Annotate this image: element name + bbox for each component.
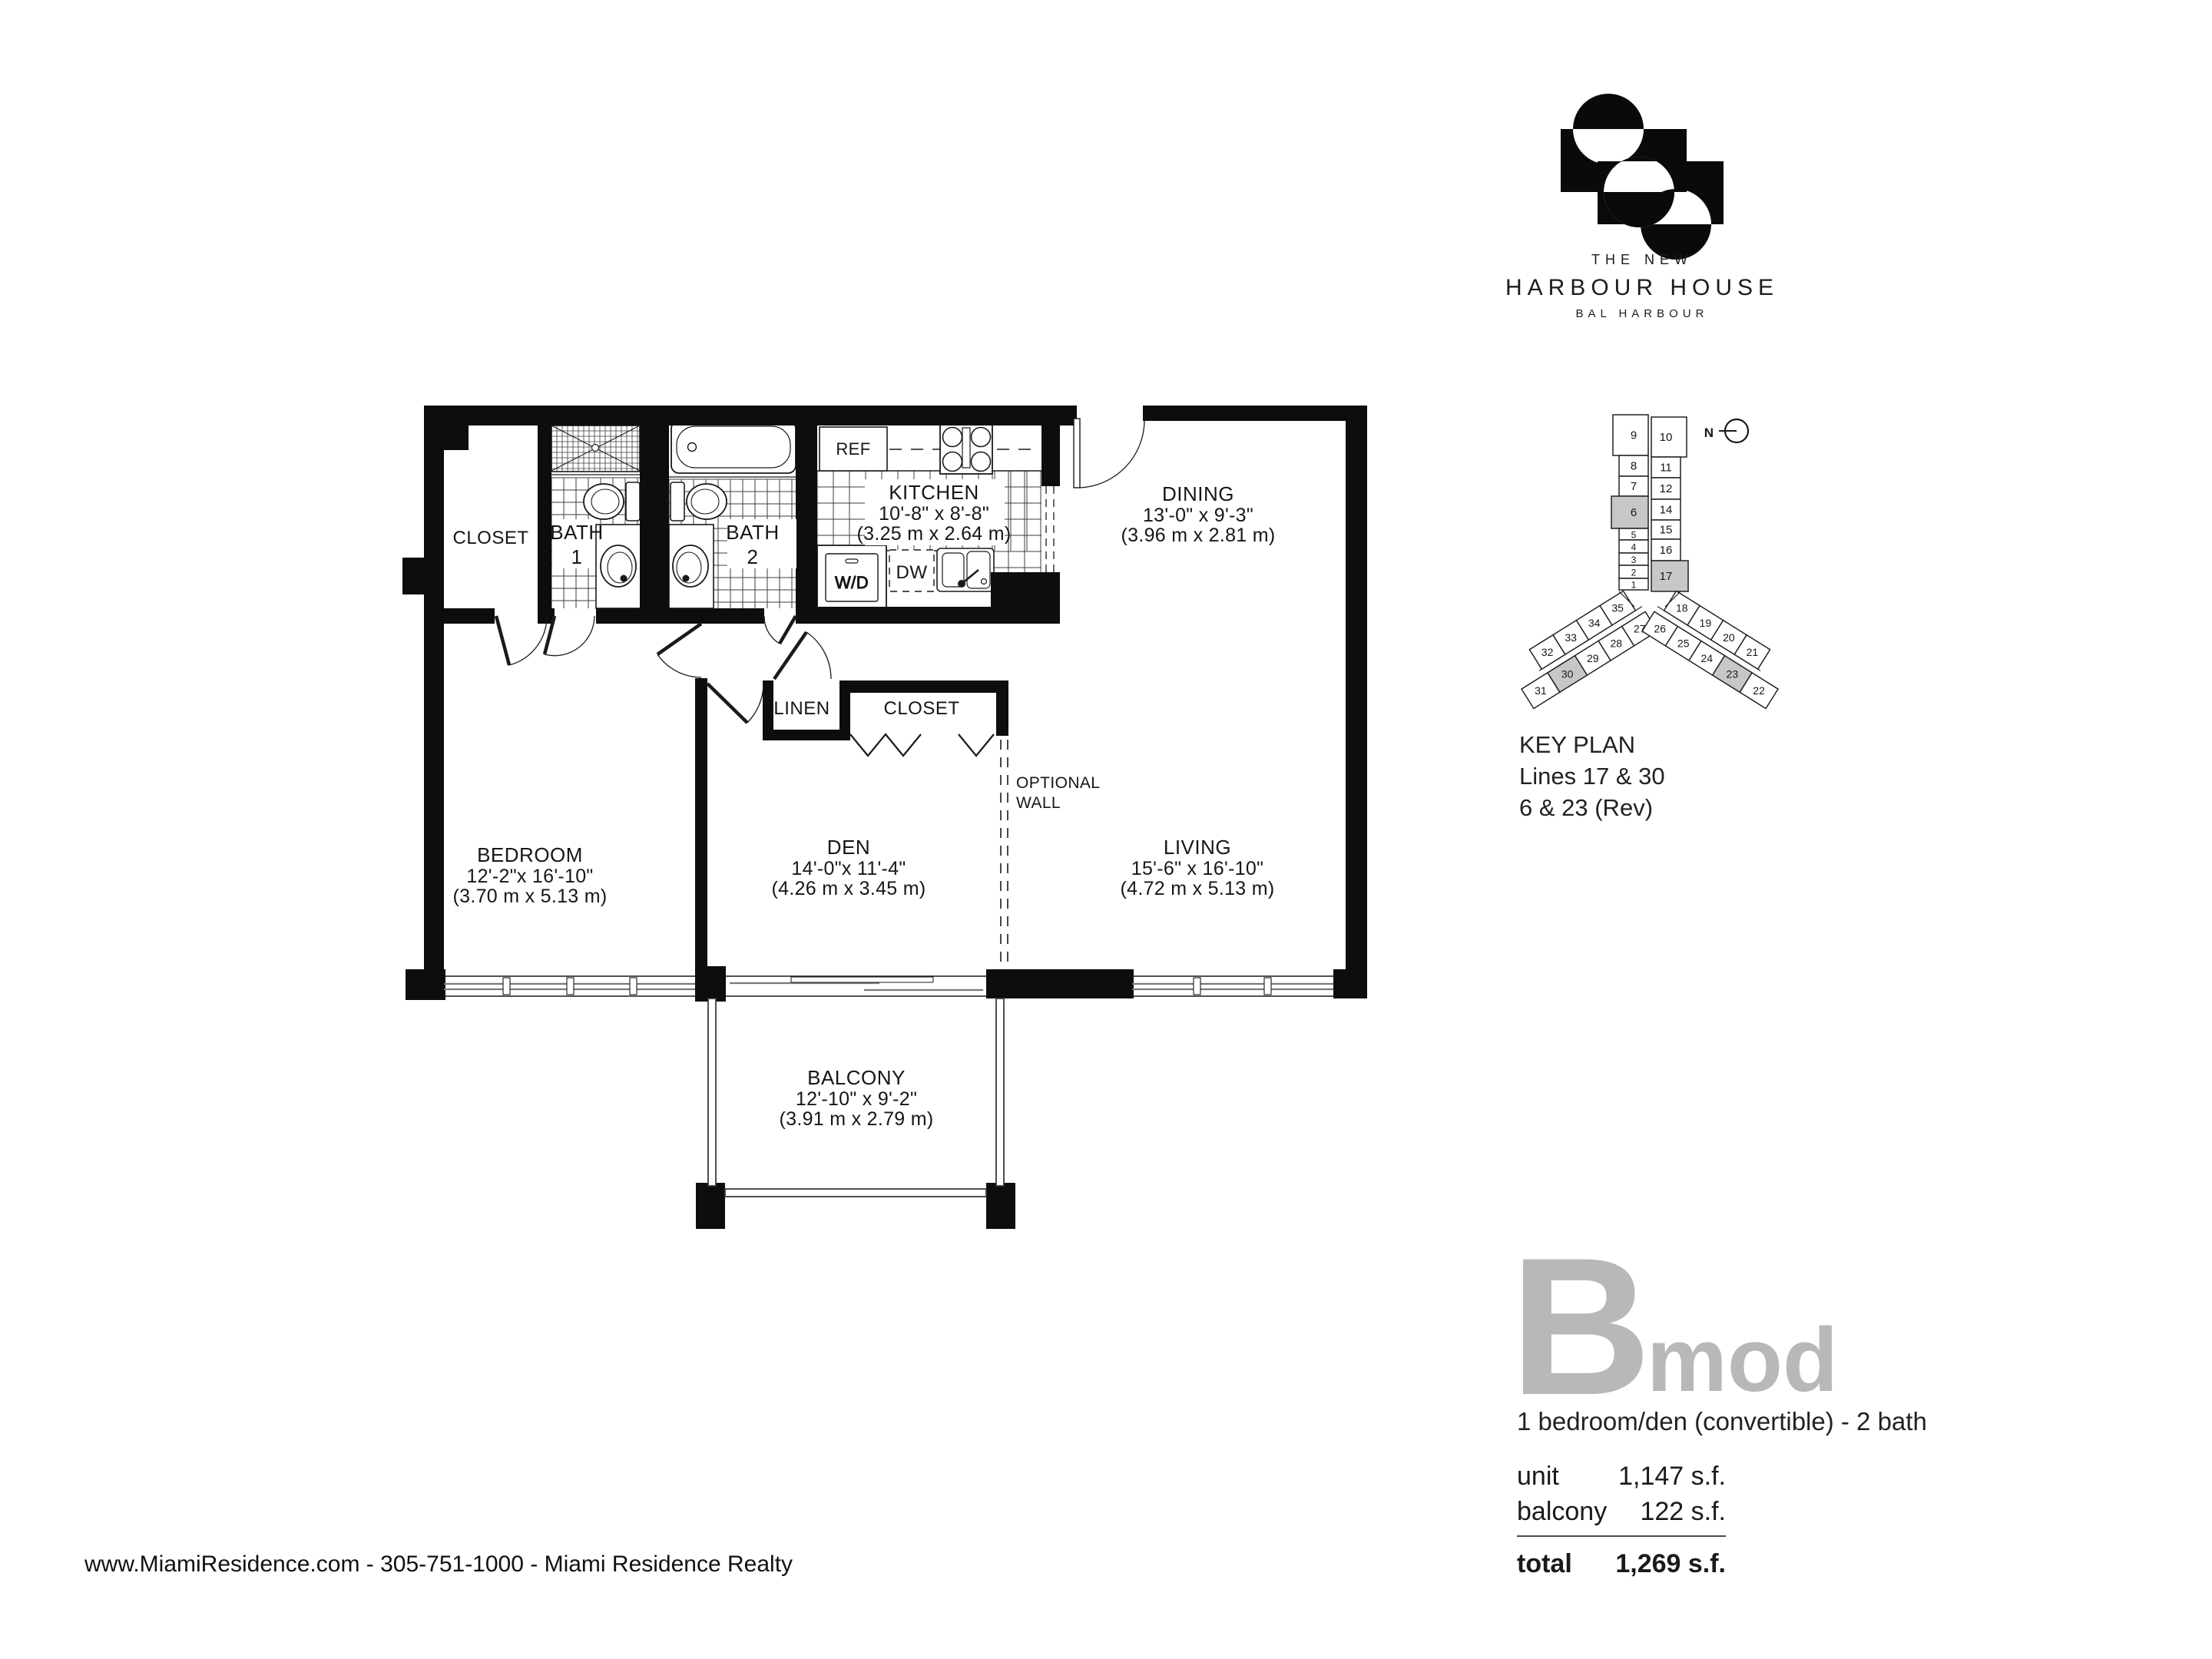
dishwasher: DW	[889, 550, 934, 591]
brand-block: THE NEW HARBOUR HOUSE BAL HARBOUR	[1488, 252, 1796, 320]
kitchen-dims-metric: (3.25 m x 2.64 m)	[857, 523, 1012, 545]
stat-value: 122 s.f.	[1640, 1498, 1726, 1525]
plan-suffix: mod	[1647, 1315, 1838, 1406]
kitchen-sink	[937, 548, 994, 591]
living-label: LIVING	[1164, 836, 1231, 859]
key-plan-unit-16: 16	[1660, 544, 1673, 557]
key-plan-unit-5: 5	[1631, 530, 1637, 541]
bedroom-label: BEDROOM	[477, 843, 583, 866]
balcony-slider-window	[726, 976, 986, 996]
plan-letter: B	[1510, 1229, 1651, 1425]
stat-label: unit	[1517, 1463, 1559, 1489]
bedroom-dims-metric: (3.70 m x 5.13 m)	[453, 886, 608, 907]
closet2-label: CLOSET	[883, 698, 959, 719]
balcony-label: BALCONY	[807, 1066, 906, 1089]
living-dims-imperial: 15'-6" x 16'-10"	[1131, 858, 1263, 879]
unit-description: 1 bedroom/den (convertible) - 2 bath	[1517, 1407, 1927, 1436]
key-plan-unit-33: 33	[1565, 631, 1577, 644]
den-dims-metric: (4.26 m x 3.45 m)	[772, 878, 926, 899]
optional-wall-label-1: OPTIONAL	[1016, 774, 1100, 792]
north-label: N	[1704, 426, 1714, 440]
vanity-bath2	[669, 525, 714, 608]
washer-dryer: W/D	[817, 545, 886, 610]
key-plan-title: KEY PLAN	[1519, 730, 1665, 761]
refrigerator: REF	[820, 427, 887, 471]
table-row: unit 1,147 s.f.	[1517, 1463, 1726, 1489]
stat-value: 1,147 s.f.	[1618, 1463, 1726, 1489]
closet-label: CLOSET	[452, 528, 528, 548]
key-plan-unit-21: 21	[1747, 646, 1759, 658]
table-row: balcony 122 s.f.	[1517, 1498, 1726, 1525]
key-plan-unit-14: 14	[1660, 504, 1673, 517]
brand-the-new: THE NEW	[1488, 252, 1796, 268]
key-plan-unit-7: 7	[1631, 480, 1637, 493]
key-plan-unit-8: 8	[1631, 460, 1637, 473]
key-plan-caption: KEY PLAN Lines 17 & 30 6 & 23 (Rev)	[1519, 730, 1665, 824]
key-plan-unit-32: 32	[1541, 646, 1554, 658]
area-table: unit 1,147 s.f. balcony 122 s.f. total 1…	[1517, 1463, 1726, 1579]
key-plan-unit-10: 10	[1660, 431, 1673, 444]
bifold-closet-doors	[850, 734, 994, 756]
key-plan-unit-11: 11	[1660, 462, 1672, 475]
key-plan-unit-17: 17	[1660, 570, 1673, 583]
balcony-dims-metric: (3.91 m x 2.79 m)	[780, 1108, 934, 1130]
bedroom-window	[444, 976, 695, 996]
bedroom-door	[657, 624, 701, 677]
key-plan-unit-12: 12	[1660, 482, 1673, 495]
dining-dims-imperial: 13'-0" x 9'-3"	[1143, 505, 1253, 526]
key-plan-unit-2: 2	[1631, 568, 1637, 578]
optional-wall-label-2: WALL	[1016, 794, 1061, 812]
key-plan-unit-19: 19	[1700, 617, 1712, 629]
key-plan-unit-34: 34	[1588, 617, 1601, 629]
balcony-dims-imperial: 12'-10" x 9'-2"	[796, 1088, 917, 1110]
bath2-label: BATH	[726, 521, 779, 544]
linen-label: LINEN	[773, 698, 829, 719]
key-plan-unit-29: 29	[1587, 652, 1599, 664]
den-door	[707, 684, 763, 723]
bath2-number: 2	[747, 545, 759, 568]
key-plan-unit-30: 30	[1561, 667, 1574, 680]
key-plan-unit-3: 3	[1631, 555, 1637, 565]
brand-location: BAL HARBOUR	[1488, 307, 1796, 320]
bedroom-dims-imperial: 12'-2"x 16'-10"	[466, 866, 593, 887]
ref-label: REF	[836, 439, 870, 459]
key-plan-line1: Lines 17 & 30	[1519, 761, 1665, 793]
key-plan-line2: 6 & 23 (Rev)	[1519, 793, 1665, 824]
key-plan-unit-26: 26	[1654, 623, 1666, 635]
kitchen-dims-imperial: 10'-8" x 8'-8"	[879, 503, 989, 525]
toilet-bath2	[671, 482, 727, 521]
entry-door	[1074, 419, 1144, 488]
dw-label: DW	[896, 562, 928, 583]
key-plan-unit-24: 24	[1700, 652, 1713, 664]
key-plan-unit-35: 35	[1611, 602, 1624, 614]
key-plan-unit-18: 18	[1676, 602, 1688, 614]
total-value: 1,269 s.f.	[1615, 1549, 1726, 1579]
dining-dims-metric: (3.96 m x 2.81 m)	[1121, 525, 1276, 546]
bathtub	[669, 421, 796, 477]
key-plan-unit-28: 28	[1610, 637, 1622, 650]
living-dims-metric: (4.72 m x 5.13 m)	[1121, 878, 1275, 899]
floorplan-sheet: REF W/D DW	[0, 0, 2212, 1659]
bath1-label: BATH	[550, 521, 603, 544]
living-window	[1132, 976, 1333, 996]
den-label: DEN	[827, 836, 870, 859]
wd-label: W/D	[835, 573, 869, 592]
brand-name: HARBOUR HOUSE	[1488, 275, 1796, 301]
north-arrow: N	[1704, 419, 1748, 442]
kitchen-label: KITCHEN	[889, 481, 979, 504]
key-plan-unit-25: 25	[1677, 637, 1690, 650]
key-plan-unit-31: 31	[1535, 684, 1547, 697]
key-plan-unit-23: 23	[1727, 667, 1739, 680]
total-label: total	[1517, 1549, 1572, 1579]
key-plan-unit-9: 9	[1631, 429, 1637, 442]
den-dims-imperial: 14'-0"x 11'-4"	[791, 858, 906, 879]
key-plan-unit-22: 22	[1753, 684, 1765, 697]
key-plan-unit-6: 6	[1631, 506, 1637, 519]
dining-label: DINING	[1162, 482, 1234, 505]
toilet-bath1	[584, 482, 640, 521]
optional-wall	[1001, 740, 1008, 969]
harbour-house-logo-mark	[1561, 94, 1724, 260]
windows	[444, 976, 1333, 996]
bath1-door	[545, 616, 594, 656]
stat-label: balcony	[1517, 1498, 1607, 1525]
key-plan-graphic: 9876543211011121415161735343332272829303…	[1522, 415, 1778, 709]
footer-contact: www.MiamiResidence.com - 305-751-1000 - …	[84, 1551, 793, 1578]
key-plan-unit-1: 1	[1631, 580, 1637, 591]
key-plan-unit-20: 20	[1723, 631, 1735, 644]
stove	[940, 422, 992, 474]
table-row-total: total 1,269 s.f.	[1517, 1537, 1726, 1579]
bath2-door	[764, 616, 796, 644]
key-plan-unit-4: 4	[1631, 542, 1637, 553]
bath1-number: 1	[571, 545, 583, 568]
unit-plan: REF W/D DW	[402, 406, 1367, 1229]
key-plan-unit-15: 15	[1660, 524, 1673, 537]
